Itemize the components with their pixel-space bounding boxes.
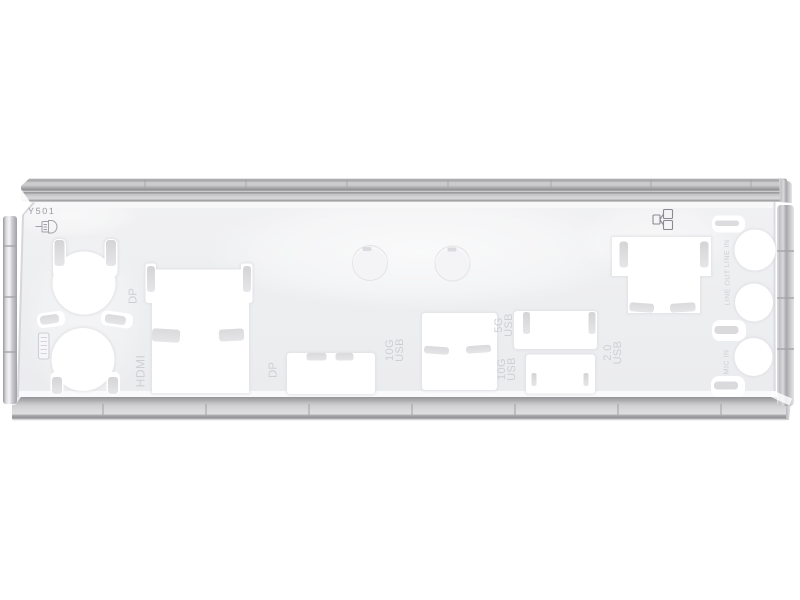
svg-text:DP: DP [128, 288, 140, 304]
svg-text:Y501: Y501 [28, 206, 55, 216]
svg-text:LINE IN: LINE IN [724, 239, 731, 267]
svg-text:USB: USB [394, 338, 406, 362]
svg-text:DP: DP [268, 362, 280, 378]
svg-text:LINE OUT: LINE OUT [725, 269, 732, 306]
svg-text:USB: USB [612, 341, 624, 365]
svg-text:MIC IN: MIC IN [724, 350, 731, 375]
svg-text:HDMI: HDMI [134, 355, 148, 388]
svg-text:USB: USB [506, 357, 518, 381]
